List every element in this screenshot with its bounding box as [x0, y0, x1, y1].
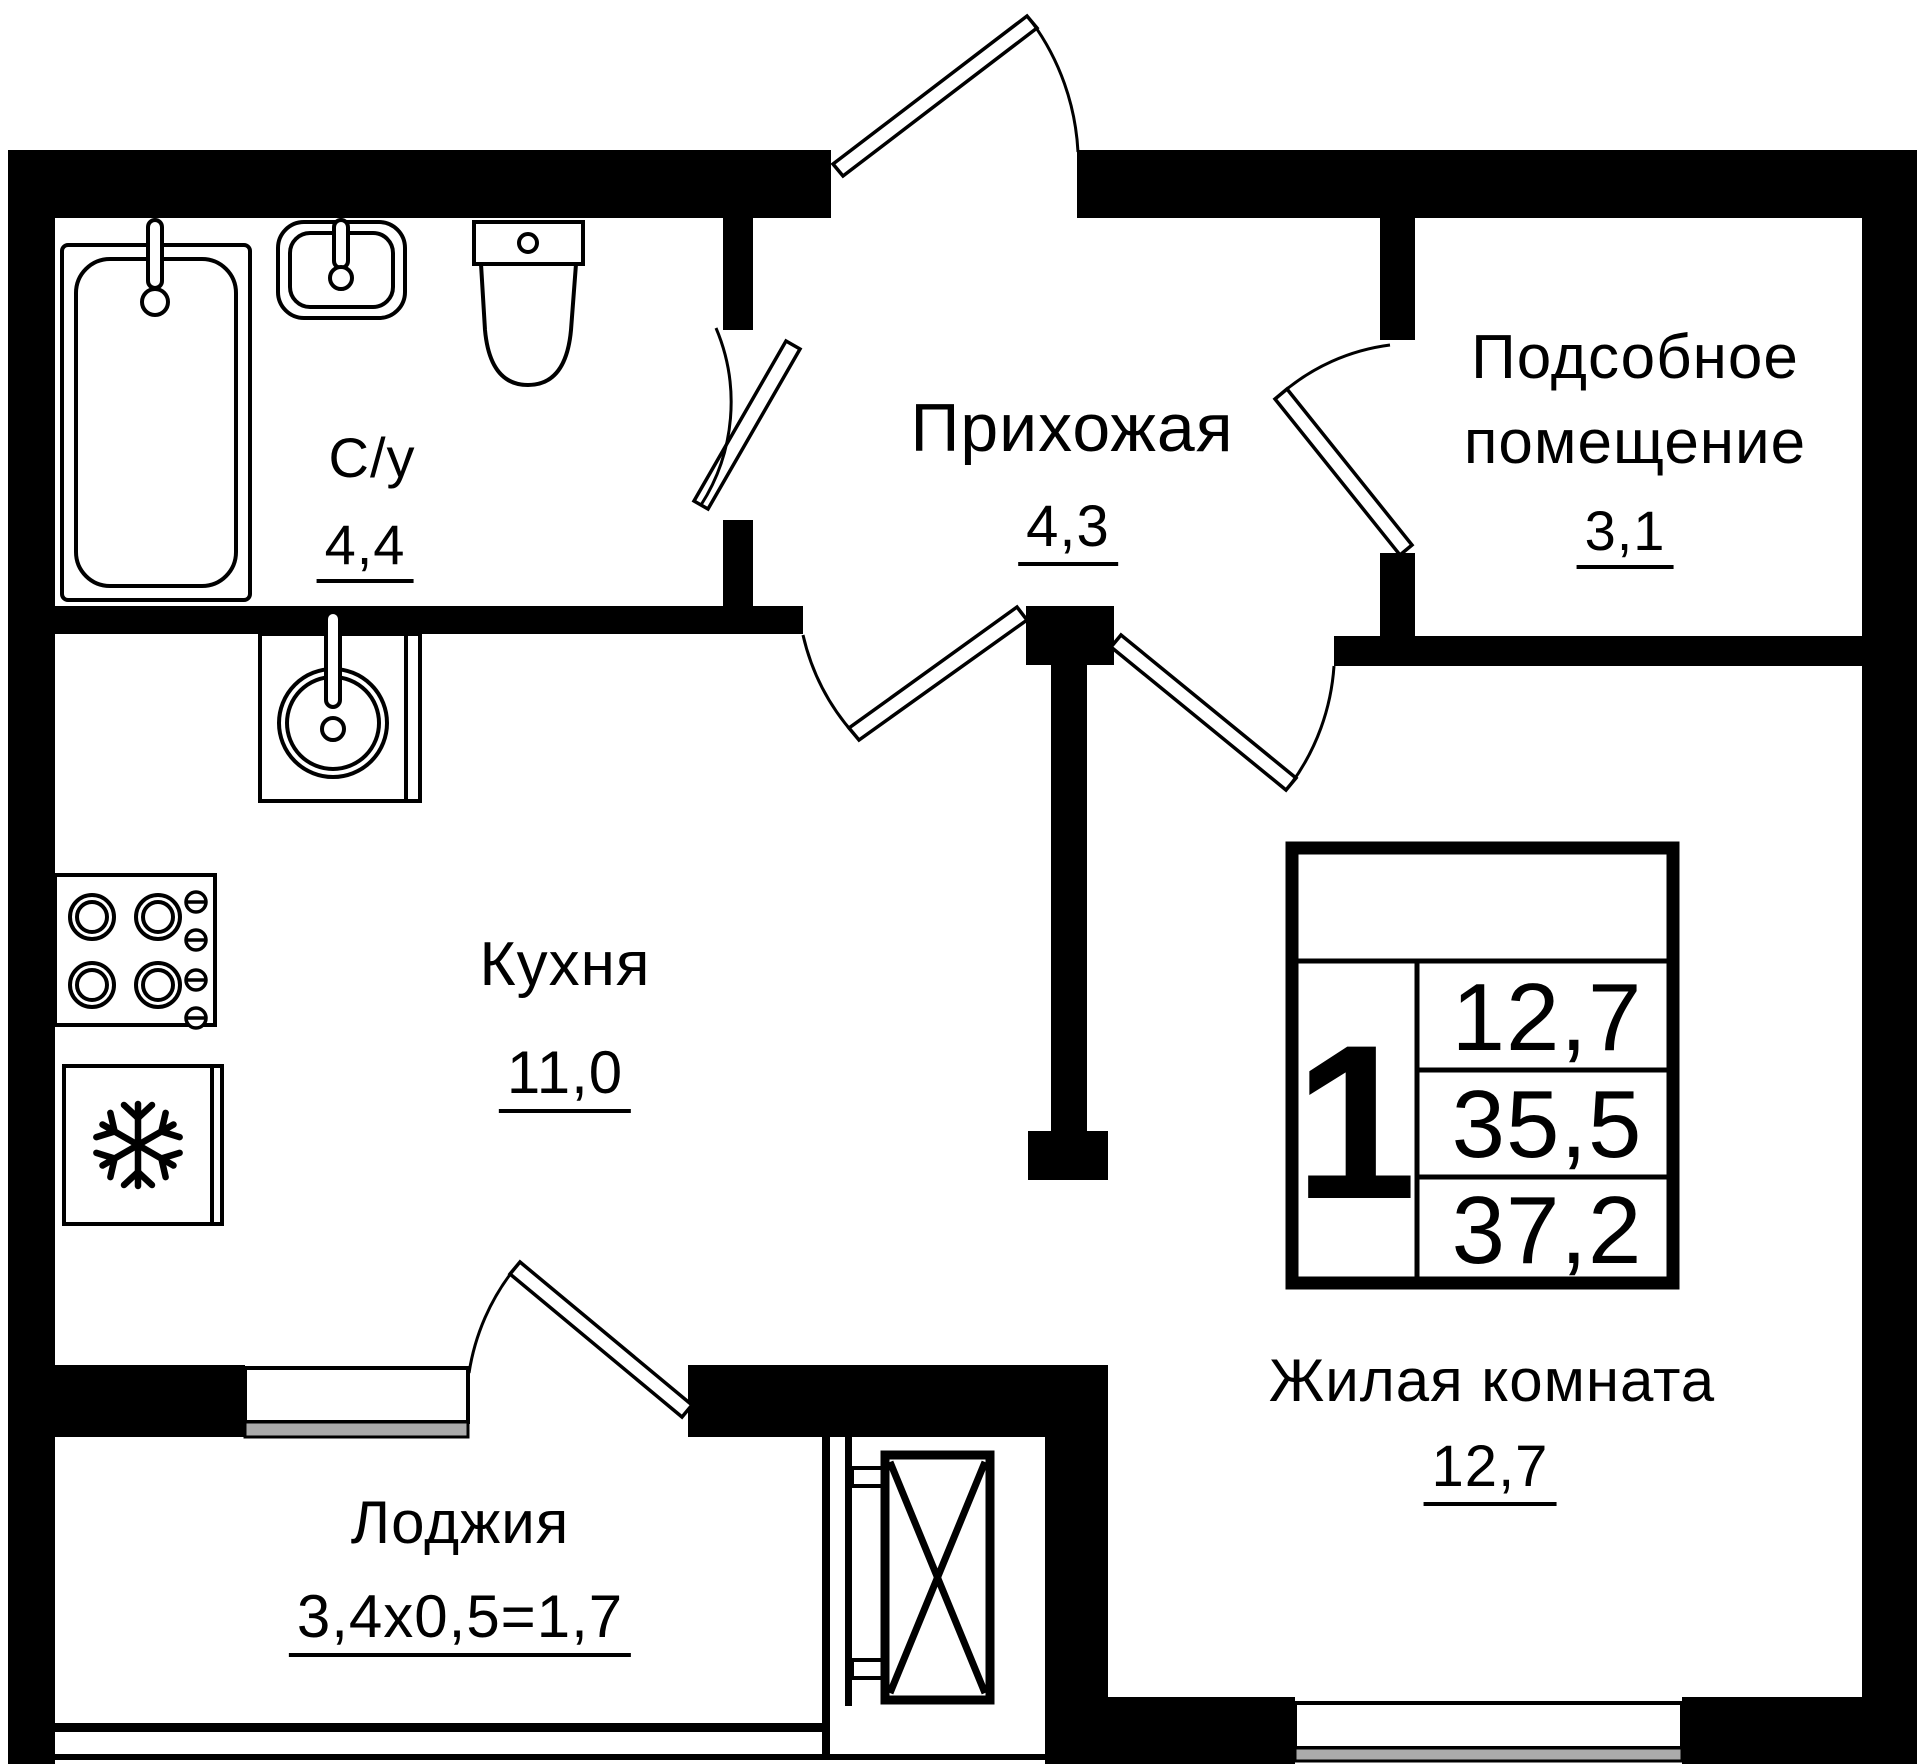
- loggia-area: 3,4х0,5=1,7: [289, 1587, 631, 1657]
- wall-loggia-right-thin: [822, 1437, 830, 1756]
- kitchen-window-sill: [245, 1422, 468, 1437]
- vent-tab-top: [852, 1468, 885, 1486]
- wall-hall-t-block: [1026, 606, 1114, 665]
- utility-door-arc: [1281, 345, 1390, 394]
- wall-left: [8, 150, 55, 1764]
- vent-tab-bottom: [852, 1660, 885, 1678]
- entrance-door-arc: [1032, 22, 1078, 152]
- utility-label-line2: помещение: [1464, 412, 1806, 474]
- kitchen-door-leaf: [849, 607, 1027, 740]
- bathroom-door-leaf: [694, 341, 800, 509]
- summary-rooms-count: 1: [1294, 1012, 1417, 1232]
- wall-living-bottom-left: [1108, 1697, 1295, 1764]
- living-room-label: Жилая комната: [1269, 1351, 1715, 1411]
- toilet-icon: [474, 222, 583, 385]
- wall-kitchen-loggia-left: [55, 1365, 245, 1437]
- wall-top-left: [8, 150, 831, 218]
- wall-kitchen-loggia-right: [688, 1365, 1108, 1437]
- kitchen-fixtures: [55, 612, 420, 1224]
- kitchen-sink-icon: [260, 612, 420, 801]
- bathroom-label: С/у: [329, 430, 416, 486]
- ventilation-shaft-icon: [852, 1455, 990, 1700]
- summary-total-area: 37,2: [1452, 1183, 1643, 1279]
- living-room-door-leaf: [1111, 635, 1296, 790]
- kitchen-area: 11,0: [499, 1043, 631, 1113]
- living-room-area: 12,7: [1424, 1438, 1557, 1506]
- wall-kitchen-living-divider: [1051, 665, 1087, 1131]
- wall-right: [1862, 150, 1917, 1764]
- sink-icon: [278, 220, 405, 318]
- summary-living-area: 12,7: [1452, 970, 1643, 1066]
- bathroom-area: 4,4: [317, 517, 414, 583]
- bathtub-icon: [62, 220, 250, 600]
- summary-area-without-loggia: 35,5: [1452, 1077, 1643, 1173]
- floor-plan: С/у 4,4 Прихожая 4,3 Подсобное помещение…: [0, 0, 1925, 1764]
- wall-living-bottom-right: [1682, 1697, 1862, 1764]
- wall-utility-bottom: [1334, 636, 1862, 666]
- hallway-area: 4,3: [1018, 498, 1118, 566]
- wall-top-right: [1077, 150, 1917, 218]
- utility-label-line1: Подсобное: [1471, 327, 1799, 389]
- entrance-door-leaf: [833, 16, 1037, 176]
- wall-bathroom-right-top: [723, 218, 753, 330]
- doors: [469, 16, 1412, 1417]
- wall-utility-left-top: [1380, 218, 1415, 340]
- floor-plan-drawing: [0, 0, 1925, 1764]
- loggia-label: Лоджия: [351, 1493, 570, 1553]
- living-room-window-sill: [1295, 1748, 1682, 1761]
- balcony-door-leaf: [510, 1262, 692, 1417]
- loggia-railing-outer: [55, 1723, 830, 1732]
- utility-door-leaf: [1275, 389, 1412, 555]
- kitchen-door-arc: [803, 635, 854, 734]
- kitchen-window: [245, 1368, 468, 1422]
- living-room-window: [1295, 1703, 1682, 1748]
- kitchen-label: Кухня: [480, 934, 651, 996]
- utility-area: 3,1: [1577, 503, 1674, 569]
- wall-living-left-bottom: [1045, 1437, 1108, 1764]
- wall-bathroom-bottom: [55, 606, 803, 634]
- living-room-door-arc: [1291, 666, 1334, 784]
- balcony-door-arc: [469, 1268, 515, 1373]
- loggia-railing-inner: [55, 1754, 1045, 1760]
- wall-divider-end-block: [1028, 1131, 1108, 1180]
- hallway-label: Прихожая: [910, 394, 1233, 462]
- stove-icon: [55, 875, 215, 1028]
- fridge-icon: [64, 1066, 222, 1224]
- wall-bathroom-right-bottom: [723, 520, 753, 606]
